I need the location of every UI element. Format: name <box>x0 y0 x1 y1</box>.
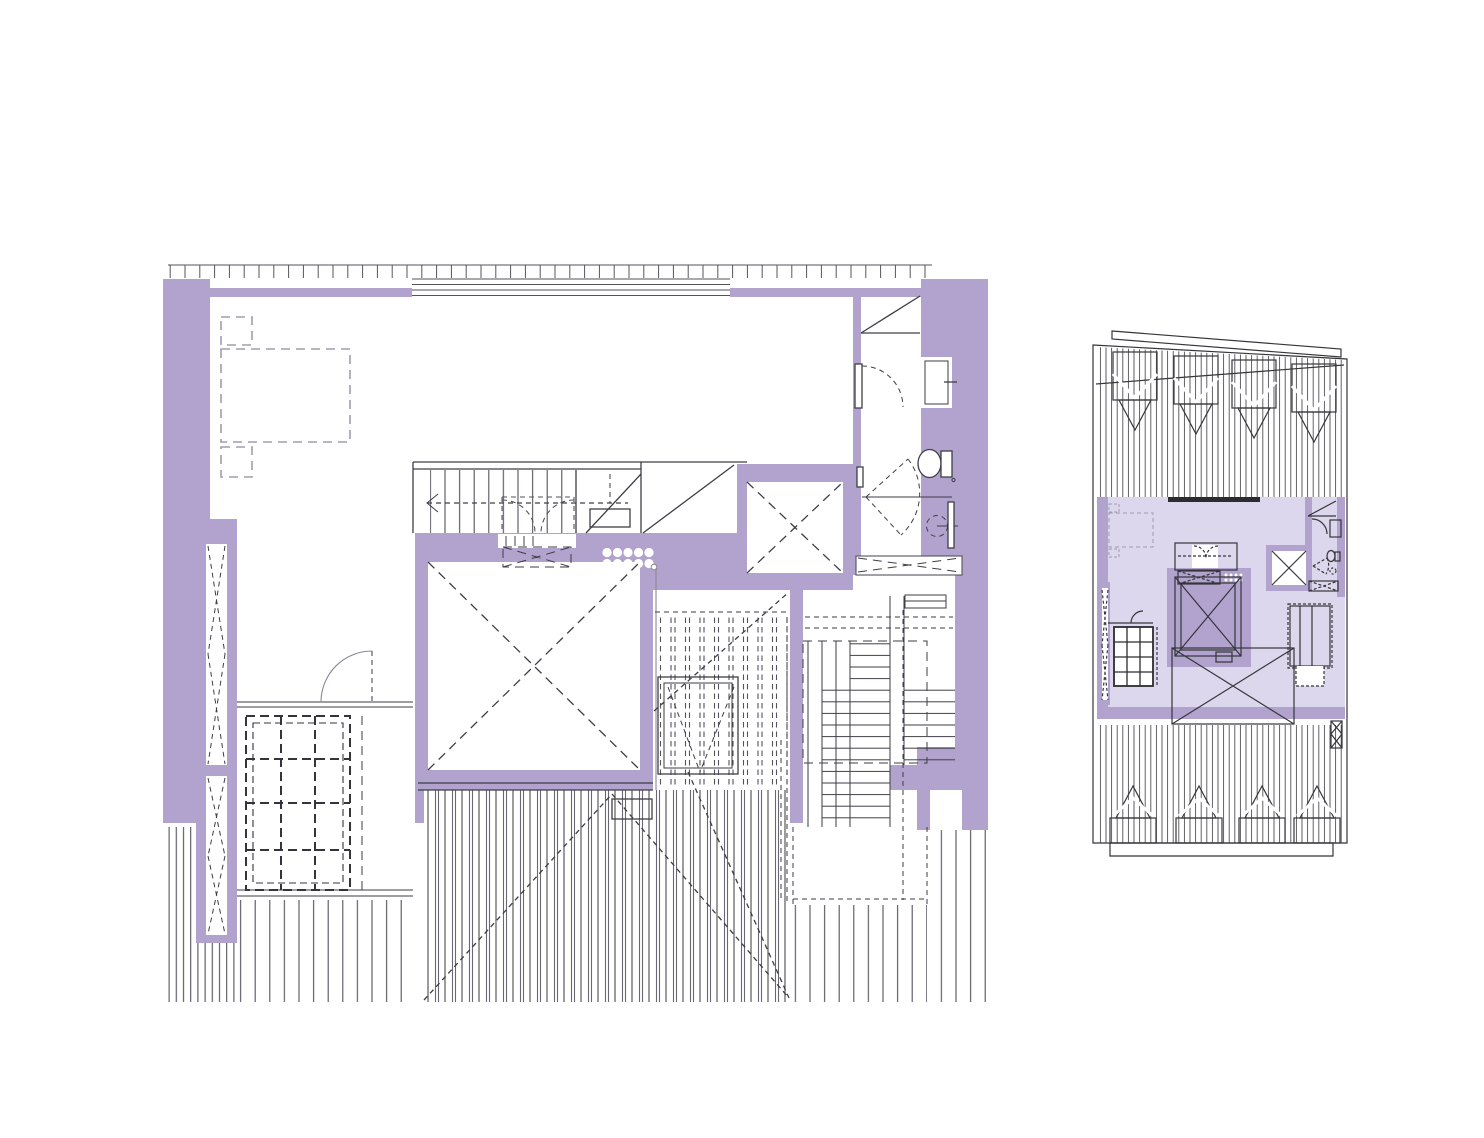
main-floor-plan <box>163 265 988 1002</box>
toilet <box>918 450 941 478</box>
under-stair-cabinet <box>590 509 630 527</box>
drawing-sheet <box>0 0 1484 1138</box>
roof-hatch-central <box>424 790 790 1002</box>
stair-notch <box>930 790 962 830</box>
deck-hatch-below-landing <box>793 905 927 1002</box>
skylight-void-hatch <box>658 616 788 788</box>
toilet-tank <box>941 451 952 477</box>
dressing-door-swing <box>321 651 372 702</box>
deck-hatch-center-left <box>237 900 413 1002</box>
secondary-stair-treads-left <box>822 688 890 827</box>
terrace-railing-ticks <box>168 265 932 278</box>
deck-hatch-right <box>930 830 988 1002</box>
roof-cap-bottom <box>1110 843 1333 856</box>
radiator <box>948 502 954 548</box>
mini-duct-shaft <box>1272 551 1306 585</box>
louver-slot-lower <box>206 776 227 935</box>
key-plan <box>1093 331 1347 856</box>
lower-roof-hatch <box>1096 725 1344 843</box>
under-stair-diagonals <box>586 465 734 533</box>
bathroom-door-swing <box>862 366 903 407</box>
main-stair-treads <box>430 470 576 533</box>
stair-landing-dashed <box>793 827 927 905</box>
deck-hatch-left <box>163 827 196 1002</box>
louver-slot-upper <box>206 544 227 765</box>
sliding-glazing-lines <box>412 279 730 296</box>
upper-roof-hatch <box>1096 347 1344 497</box>
floor-plan-canvas <box>0 0 1484 1138</box>
bathroom-door-leaf <box>855 364 862 408</box>
bed <box>221 349 350 442</box>
skylight-grid-lines <box>246 716 350 890</box>
secondary-stair-treads-upper <box>850 641 890 688</box>
mini-louver-slot <box>1102 588 1108 700</box>
door-pivot-dot <box>651 564 657 570</box>
mini-glazing-bar <box>1168 497 1260 502</box>
secondary-stair-treads-right <box>904 688 955 765</box>
shelf-recess <box>498 534 576 548</box>
nightstand-top <box>221 317 252 345</box>
partition-wall <box>237 702 413 707</box>
dressing-room <box>237 651 413 896</box>
deck-hatch-left2 <box>197 943 237 1002</box>
elevator-shaft <box>428 562 640 770</box>
door-stop <box>857 467 863 487</box>
headroom-line <box>861 296 920 333</box>
bedroom-bed-dashed <box>221 317 350 477</box>
nightstand-bottom <box>221 447 252 477</box>
